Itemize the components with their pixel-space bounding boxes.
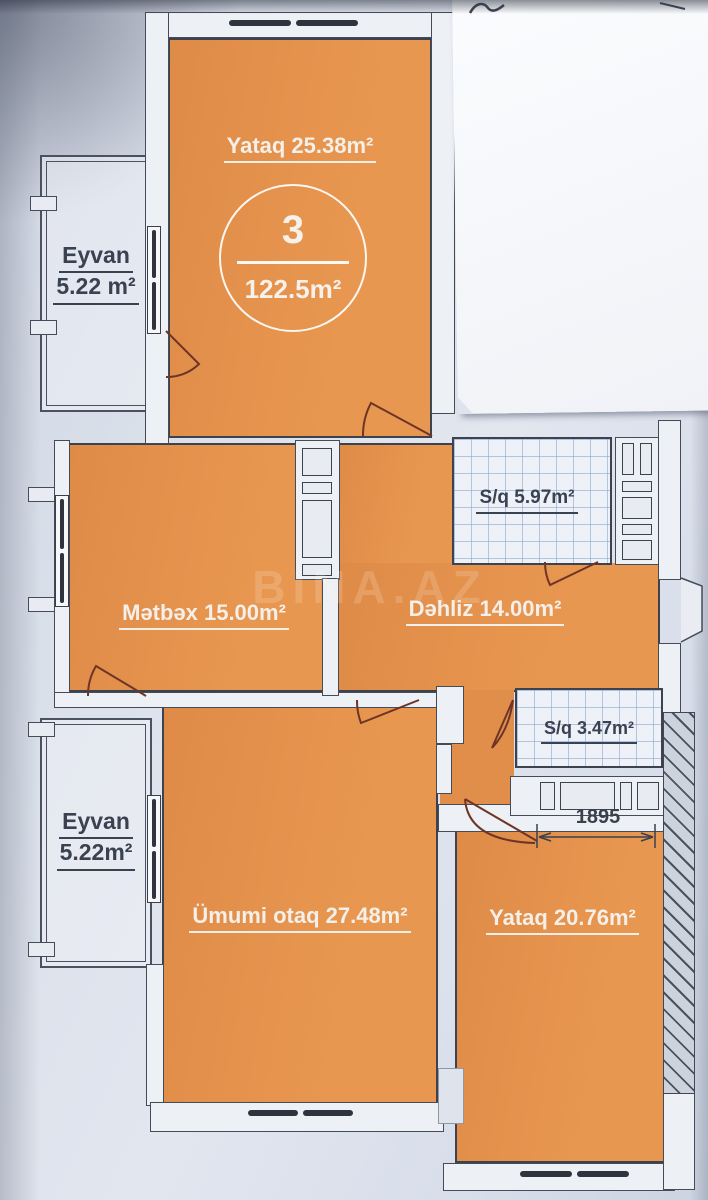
wall-right-upper bbox=[431, 12, 455, 414]
window-glass-bar bbox=[296, 20, 358, 26]
watermark: BINA.AZ bbox=[245, 560, 495, 614]
vent-cell bbox=[622, 497, 652, 519]
unit-circle-badge: 3 122.5m² bbox=[219, 184, 367, 332]
room-label-sq-top: S/q 5.97m² bbox=[452, 487, 602, 514]
window-glass-bar bbox=[60, 499, 64, 549]
room-label-eyvan-bottom: Eyvan 5.22m² bbox=[40, 808, 152, 871]
paper-sheet-overlay bbox=[452, 0, 708, 414]
wall-tick bbox=[28, 942, 55, 957]
window-band-cell bbox=[540, 782, 555, 810]
window-glass-bar bbox=[520, 1171, 572, 1177]
window-glass-bar bbox=[60, 553, 64, 603]
window-glass-bar bbox=[229, 20, 291, 26]
room-dehliz-upper bbox=[338, 443, 453, 567]
vent-cell bbox=[640, 443, 652, 475]
vent-cell bbox=[622, 481, 652, 492]
wall-tick bbox=[30, 196, 57, 211]
wall-left-lower bbox=[146, 964, 164, 1106]
wall-post bbox=[438, 1068, 464, 1124]
wall-tick bbox=[28, 722, 55, 737]
room-label-umumi: Ümumi otaq 27.48m² bbox=[167, 903, 433, 933]
wall-bottom-bedroom2 bbox=[443, 1163, 675, 1191]
wall-bottom-livingroom bbox=[150, 1102, 444, 1132]
unit-number: 3 bbox=[221, 208, 365, 253]
vent-cell bbox=[622, 443, 634, 475]
wall-tick bbox=[28, 487, 55, 502]
window-glass-bar bbox=[248, 1110, 298, 1116]
wall-column-corridor bbox=[436, 686, 464, 744]
shaft-cell bbox=[302, 448, 332, 476]
paper-sheet-fold bbox=[458, 397, 473, 414]
window-glass-bar bbox=[152, 282, 156, 330]
floor-plan-photo: Yataq 25.38m² 3 122.5m² Eyvan 5.22 m² Mə… bbox=[0, 0, 708, 1200]
window-glass-bar bbox=[152, 851, 156, 899]
room-label-yataq-top: Yataq 25.38m² bbox=[178, 133, 422, 163]
wall-tick bbox=[28, 597, 55, 612]
vent-cell bbox=[622, 524, 652, 535]
paper-top-shadow bbox=[0, 0, 708, 14]
room-label-yataq-bottom: Yataq 20.76m² bbox=[460, 905, 665, 935]
room-label-eyvan-top: Eyvan 5.22 m² bbox=[40, 242, 152, 305]
shaft-cell bbox=[302, 482, 332, 494]
window-glass-bar bbox=[152, 230, 156, 278]
window-band-cell bbox=[637, 782, 659, 810]
badge-divider bbox=[237, 261, 349, 264]
wall-tick bbox=[30, 320, 57, 335]
window-glass-bar bbox=[152, 799, 156, 847]
room-yataq-bottom bbox=[455, 830, 668, 1163]
dimension-value: 1895 bbox=[556, 806, 640, 829]
room-label-sq-bottom: S/q 3.47m² bbox=[515, 718, 663, 744]
shaft-cell bbox=[302, 500, 332, 558]
wall-right-c bbox=[663, 1092, 695, 1190]
window-glass-bar bbox=[577, 1171, 629, 1177]
wall-column-corridor-2 bbox=[436, 744, 452, 794]
hatched-wall bbox=[663, 712, 695, 1094]
window-glass-bar bbox=[303, 1110, 353, 1116]
vent-cell bbox=[622, 540, 652, 560]
wall-horizontal-middle bbox=[54, 692, 456, 708]
unit-total-area: 122.5m² bbox=[221, 274, 365, 305]
wall-right-a bbox=[658, 420, 681, 580]
